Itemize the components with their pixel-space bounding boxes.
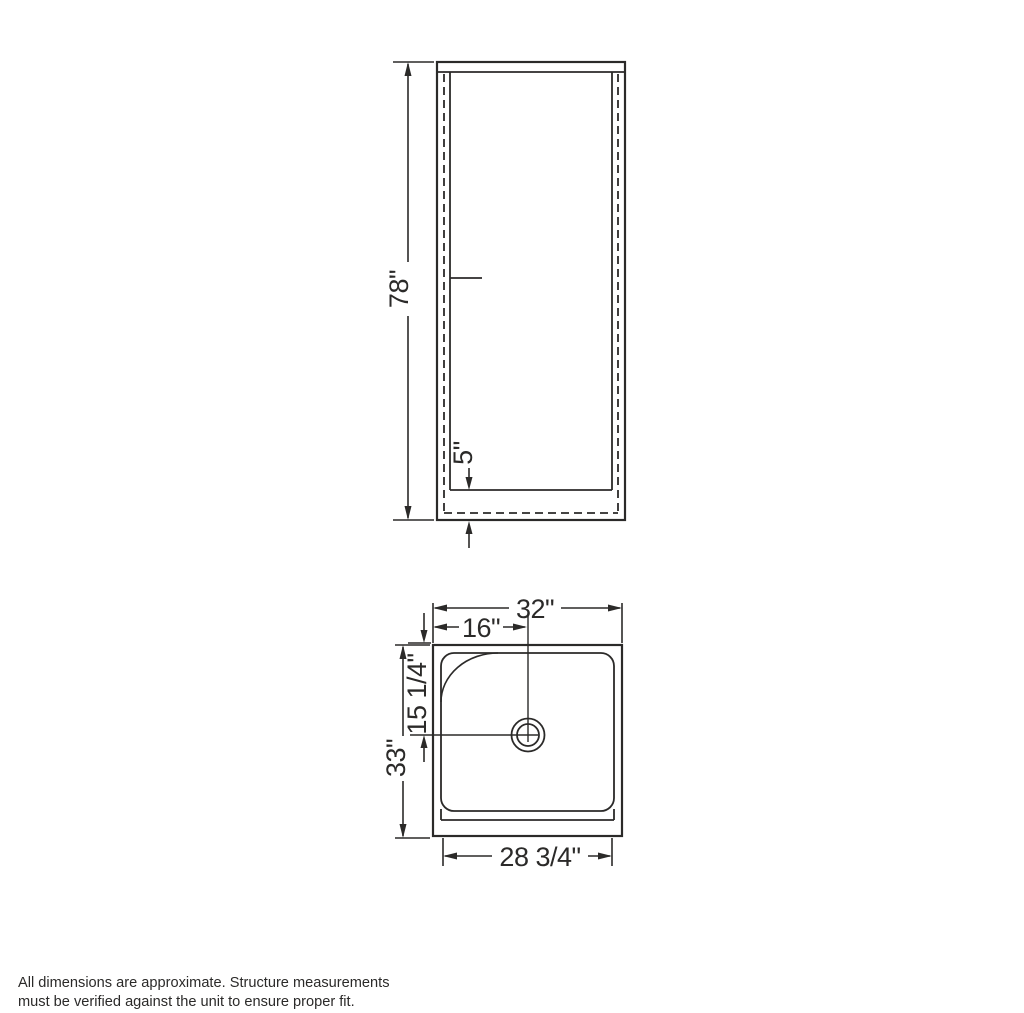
arrowhead-up-icon [421,735,428,748]
technical-drawing-canvas: 78" 5" 32" [0,0,1024,1013]
arrowhead-right-icon [513,624,527,631]
plan-width-label: 32" [516,594,554,624]
arrowhead-down-icon [421,630,428,643]
front-height-label: 78" [384,270,414,308]
arrowhead-left-icon [443,853,457,860]
footnote-line-1: All dimensions are approximate. Structur… [18,975,390,991]
arrowhead-right-icon [598,853,612,860]
plan-drain-offset-x-label: 16" [462,613,500,643]
arrowhead-up-icon [466,521,473,534]
arrowhead-left-icon [433,624,447,631]
plan-base-width-label: 28 3/4" [499,842,580,872]
footnote-line-2: must be verified against the unit to ens… [18,994,355,1010]
arrowhead-right-icon [608,605,622,612]
arrowhead-up-icon [400,645,407,659]
plan-drain-offset-y-label: 15 1/4" [402,653,432,734]
arrowhead-down-icon [405,506,412,520]
front-threshold-label: 5" [448,441,478,465]
footnote: All dimensions are approximate. Structur… [18,975,390,1010]
arrowhead-down-icon [400,824,407,838]
arrowhead-down-icon [466,477,473,490]
dimension-threshold-5 [466,468,473,548]
plan-view [410,616,622,836]
pan-corner-arc [441,653,498,702]
arrowhead-up-icon [405,62,412,76]
arrowhead-left-icon [433,605,447,612]
plan-depth-label: 33" [381,739,411,777]
